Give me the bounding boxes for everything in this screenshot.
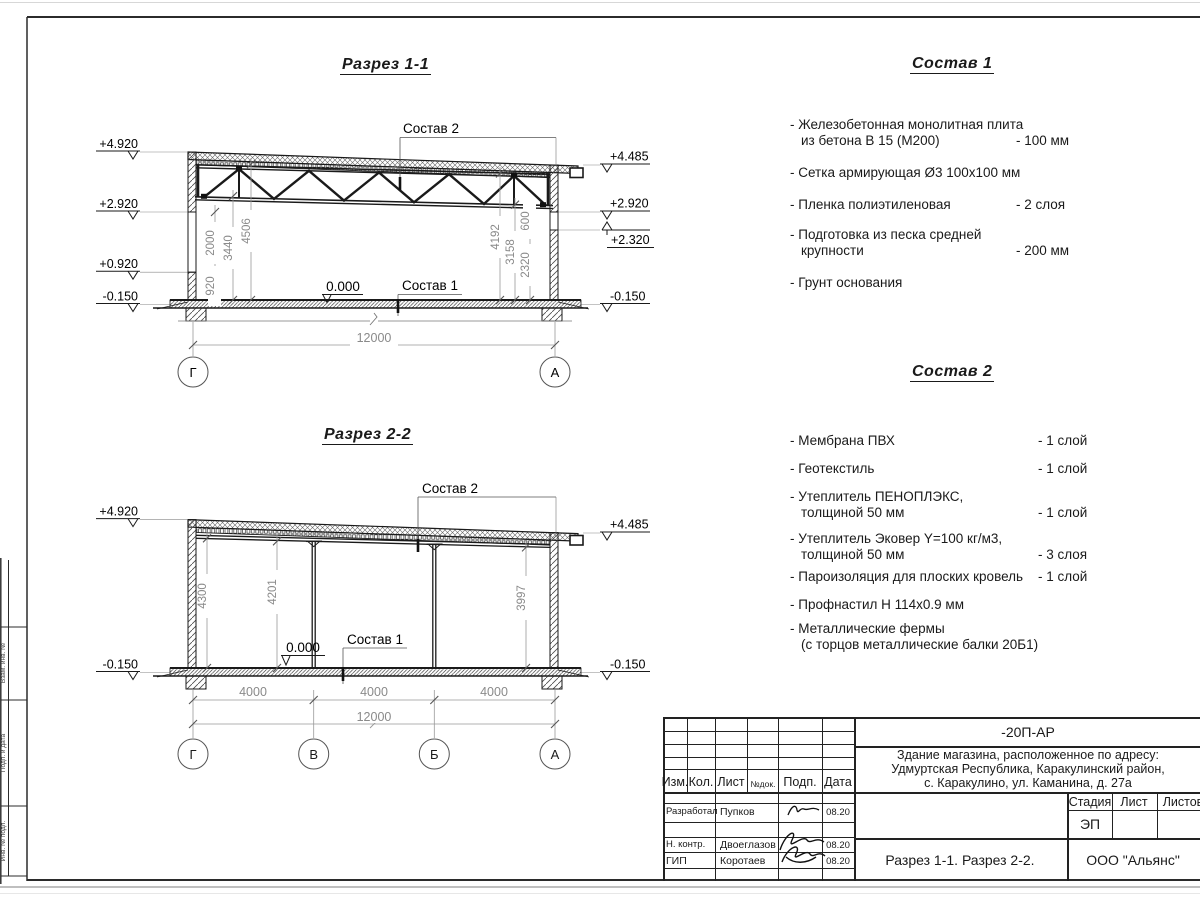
zero-label-2: 0.000 — [286, 640, 320, 655]
row-role: ГИП — [666, 855, 687, 867]
elevation-marks-right-1: +4.485 +2.920 +2.320 -0.150 — [600, 150, 654, 312]
svg-text:+4.920: +4.920 — [99, 505, 138, 519]
list-item: из бетона В 15 (М200) — [790, 133, 940, 148]
side-stamp: Взам. инв. № Подп. и дата Инв. № подл. — [0, 560, 27, 876]
row-name: Коротаев — [720, 855, 765, 867]
list-item: - Пленка полиэтиленовая — [790, 197, 951, 212]
svg-text:+2.920: +2.920 — [99, 197, 138, 211]
list-item: - Геотекстиль — [790, 461, 874, 476]
list-item: - Утеплитель ПЕНОПЛЭКС, — [790, 489, 963, 504]
row-role: Разработал — [666, 806, 718, 817]
svg-text:+0.920: +0.920 — [99, 257, 138, 271]
svg-text:3440: 3440 — [223, 235, 235, 261]
svg-text:3997: 3997 — [516, 585, 528, 611]
section-2-title: Разрез 2-2 — [322, 426, 413, 444]
columns-2 — [306, 541, 443, 668]
list-item: толщиной 50 мм — [790, 547, 904, 562]
list-label: Лист — [1120, 795, 1147, 809]
zero-mark-1: 0.000 — [322, 279, 363, 303]
list-item-value: - 1 слой — [1038, 461, 1087, 476]
company-name: ООО "Альянс" — [1086, 852, 1180, 868]
signature-icon — [786, 802, 822, 820]
elevation-marks-left-2: +4.920 -0.150 — [96, 505, 140, 680]
section-2-2-drawing: Состав 2 Состав 1 0.000 +4.920 -0.150 +4… — [96, 481, 650, 769]
list-item-value: - 1 слой — [1038, 569, 1087, 584]
list-item: - Профнастил Н 114х0.9 мм — [790, 597, 964, 612]
svg-text:+2.320: +2.320 — [611, 233, 650, 247]
col-list: Лист — [717, 775, 744, 789]
list-item: - Сетка армирующая Ø3 100х100 мм — [790, 165, 1020, 180]
row-role: Н. контр. — [666, 839, 705, 850]
svg-text:+2.920: +2.920 — [610, 197, 649, 211]
side-stamp-label-inv: Инв. № подл. — [0, 821, 7, 862]
list-item: (с торцов металлические балки 20Б1) — [790, 637, 1038, 652]
svg-text:-0.150: -0.150 — [103, 290, 138, 304]
row-date: 08.20 — [826, 840, 850, 851]
zero-mark-2: 0.000 — [281, 640, 325, 665]
axis-v-2: В — [309, 747, 318, 762]
sostav-2-title: Состав 2 — [910, 363, 994, 381]
axis-a-2: А — [551, 747, 560, 762]
svg-text:+4.485: +4.485 — [610, 150, 649, 164]
row-name: Двоеглазов — [720, 839, 776, 851]
project-address: с. Каракулино, ул. Каманина, д. 27а — [924, 776, 1132, 790]
axis-b-2: Б — [430, 747, 439, 762]
list-item: толщиной 50 мм — [790, 505, 904, 520]
total-dim-1: 12000 — [357, 331, 392, 345]
row-date: 08.20 — [826, 807, 850, 818]
project-address: Здание магазина, расположенное по адресу… — [897, 748, 1159, 762]
svg-text:-0.150: -0.150 — [610, 658, 645, 672]
sostav-1-list: Состав 1 - Железобетонная монолитная пли… — [788, 55, 1198, 305]
svg-text:920: 920 — [205, 276, 217, 295]
svg-text:+4.485: +4.485 — [610, 518, 649, 532]
total-dim-2: 12000 — [357, 710, 392, 724]
signature-icon — [776, 826, 828, 868]
list-item: крупности — [790, 243, 864, 258]
svg-text:4506: 4506 — [241, 218, 253, 244]
sostav2-ref-label-2: Состав 2 — [422, 481, 478, 496]
svg-text:4300: 4300 — [197, 583, 209, 609]
list-item-value: - 200 мм — [1016, 243, 1069, 258]
leader-sostav1-1: Состав 1 — [398, 278, 462, 316]
axis-g-1: Г — [189, 365, 196, 380]
col-ndok: №док. — [751, 779, 776, 789]
svg-text:2000: 2000 — [205, 230, 217, 256]
sostav1-ref-label-2: Состав 1 — [347, 632, 403, 647]
svg-text:3158: 3158 — [505, 239, 517, 265]
col-kol: Кол. — [689, 775, 714, 789]
drawing-sheet: Взам. инв. № Подп. и дата Инв. № подл. — [0, 0, 1200, 900]
doc-code: -20П-АР — [1001, 724, 1055, 740]
roof-assembly-2 — [188, 520, 583, 548]
list-item-value: - 100 мм — [1016, 133, 1069, 148]
list-item-value: - 1 слой — [1038, 505, 1087, 520]
side-stamp-label-podp: Подп. и дата — [0, 733, 7, 772]
svg-text:600: 600 — [520, 211, 532, 230]
svg-text:4000: 4000 — [239, 685, 267, 699]
elevation-marks-right-2: +4.485 -0.150 — [600, 518, 650, 680]
sheet-title: Разрез 1-1. Разрез 2-2. — [885, 852, 1034, 868]
list-item: - Мембрана ПВХ — [790, 433, 895, 448]
elevation-marks-left-1: +4.920 +2.920 +0.920 -0.150 — [96, 137, 140, 312]
project-address: Удмуртская Республика, Каракулинский рай… — [891, 762, 1165, 776]
col-data: Дата — [824, 775, 852, 789]
svg-text:-0.150: -0.150 — [610, 290, 645, 304]
section-1-title: Разрез 1-1 — [340, 56, 431, 74]
list-item: - Утеплитель Эковер Y=100 кг/м3, — [790, 531, 1002, 546]
list-item: - Пароизоляция для плоских кровель — [790, 569, 1023, 584]
svg-text:2320: 2320 — [520, 252, 532, 278]
sostav1-ref-label-1: Состав 1 — [402, 278, 458, 293]
list-item: - Железобетонная монолитная плита — [790, 117, 1023, 132]
col-izm: Изм. — [662, 775, 689, 789]
list-item: - Металлические фермы — [790, 621, 945, 636]
side-stamp-label-vzam: Взам. инв. № — [0, 643, 7, 683]
list-item: - Грунт основания — [790, 275, 902, 290]
list-item-value: - 2 слоя — [1016, 197, 1065, 212]
zero-label-1: 0.000 — [326, 279, 360, 294]
listov-label: Листов — [1163, 795, 1200, 809]
row-date: 08.20 — [826, 856, 850, 867]
section-1-1-drawing: Состав 2 Состав 1 0.000 +4.920 +2.920 +0… — [96, 121, 654, 387]
row-name: Пупков — [720, 806, 755, 818]
sostav-1-title: Состав 1 — [910, 55, 994, 73]
bottom-dims-2: 4000 4000 4000 12000 Г В Б А — [178, 685, 570, 769]
leader-sostav2-1: Состав 2 — [400, 121, 556, 190]
axis-g-2: Г — [189, 747, 196, 762]
svg-text:+4.920: +4.920 — [99, 137, 138, 151]
svg-text:4000: 4000 — [360, 685, 388, 699]
sostav2-ref-label-1: Состав 2 — [403, 121, 459, 136]
svg-text:4201: 4201 — [267, 579, 279, 605]
list-item-value: - 1 слой — [1038, 433, 1087, 448]
list-item: - Подготовка из песка средней — [790, 227, 981, 242]
vertical-dims-2: 4300 4201 3997 — [197, 532, 532, 672]
svg-text:-0.150: -0.150 — [103, 658, 138, 672]
svg-text:4000: 4000 — [480, 685, 508, 699]
col-podp: Подп. — [783, 775, 816, 789]
stadia-value: ЭП — [1080, 816, 1100, 832]
bottom-dims-1: 12000 Г А — [178, 322, 570, 387]
stadia-label: Стадия — [1069, 795, 1112, 809]
svg-text:4192: 4192 — [490, 224, 502, 250]
axis-a-1: А — [551, 365, 560, 380]
list-item-value: - 3 слоя — [1038, 547, 1087, 562]
sostav-2-list: Состав 2 - Мембрана ПВХ - 1 слой - Геоте… — [788, 363, 1198, 653]
